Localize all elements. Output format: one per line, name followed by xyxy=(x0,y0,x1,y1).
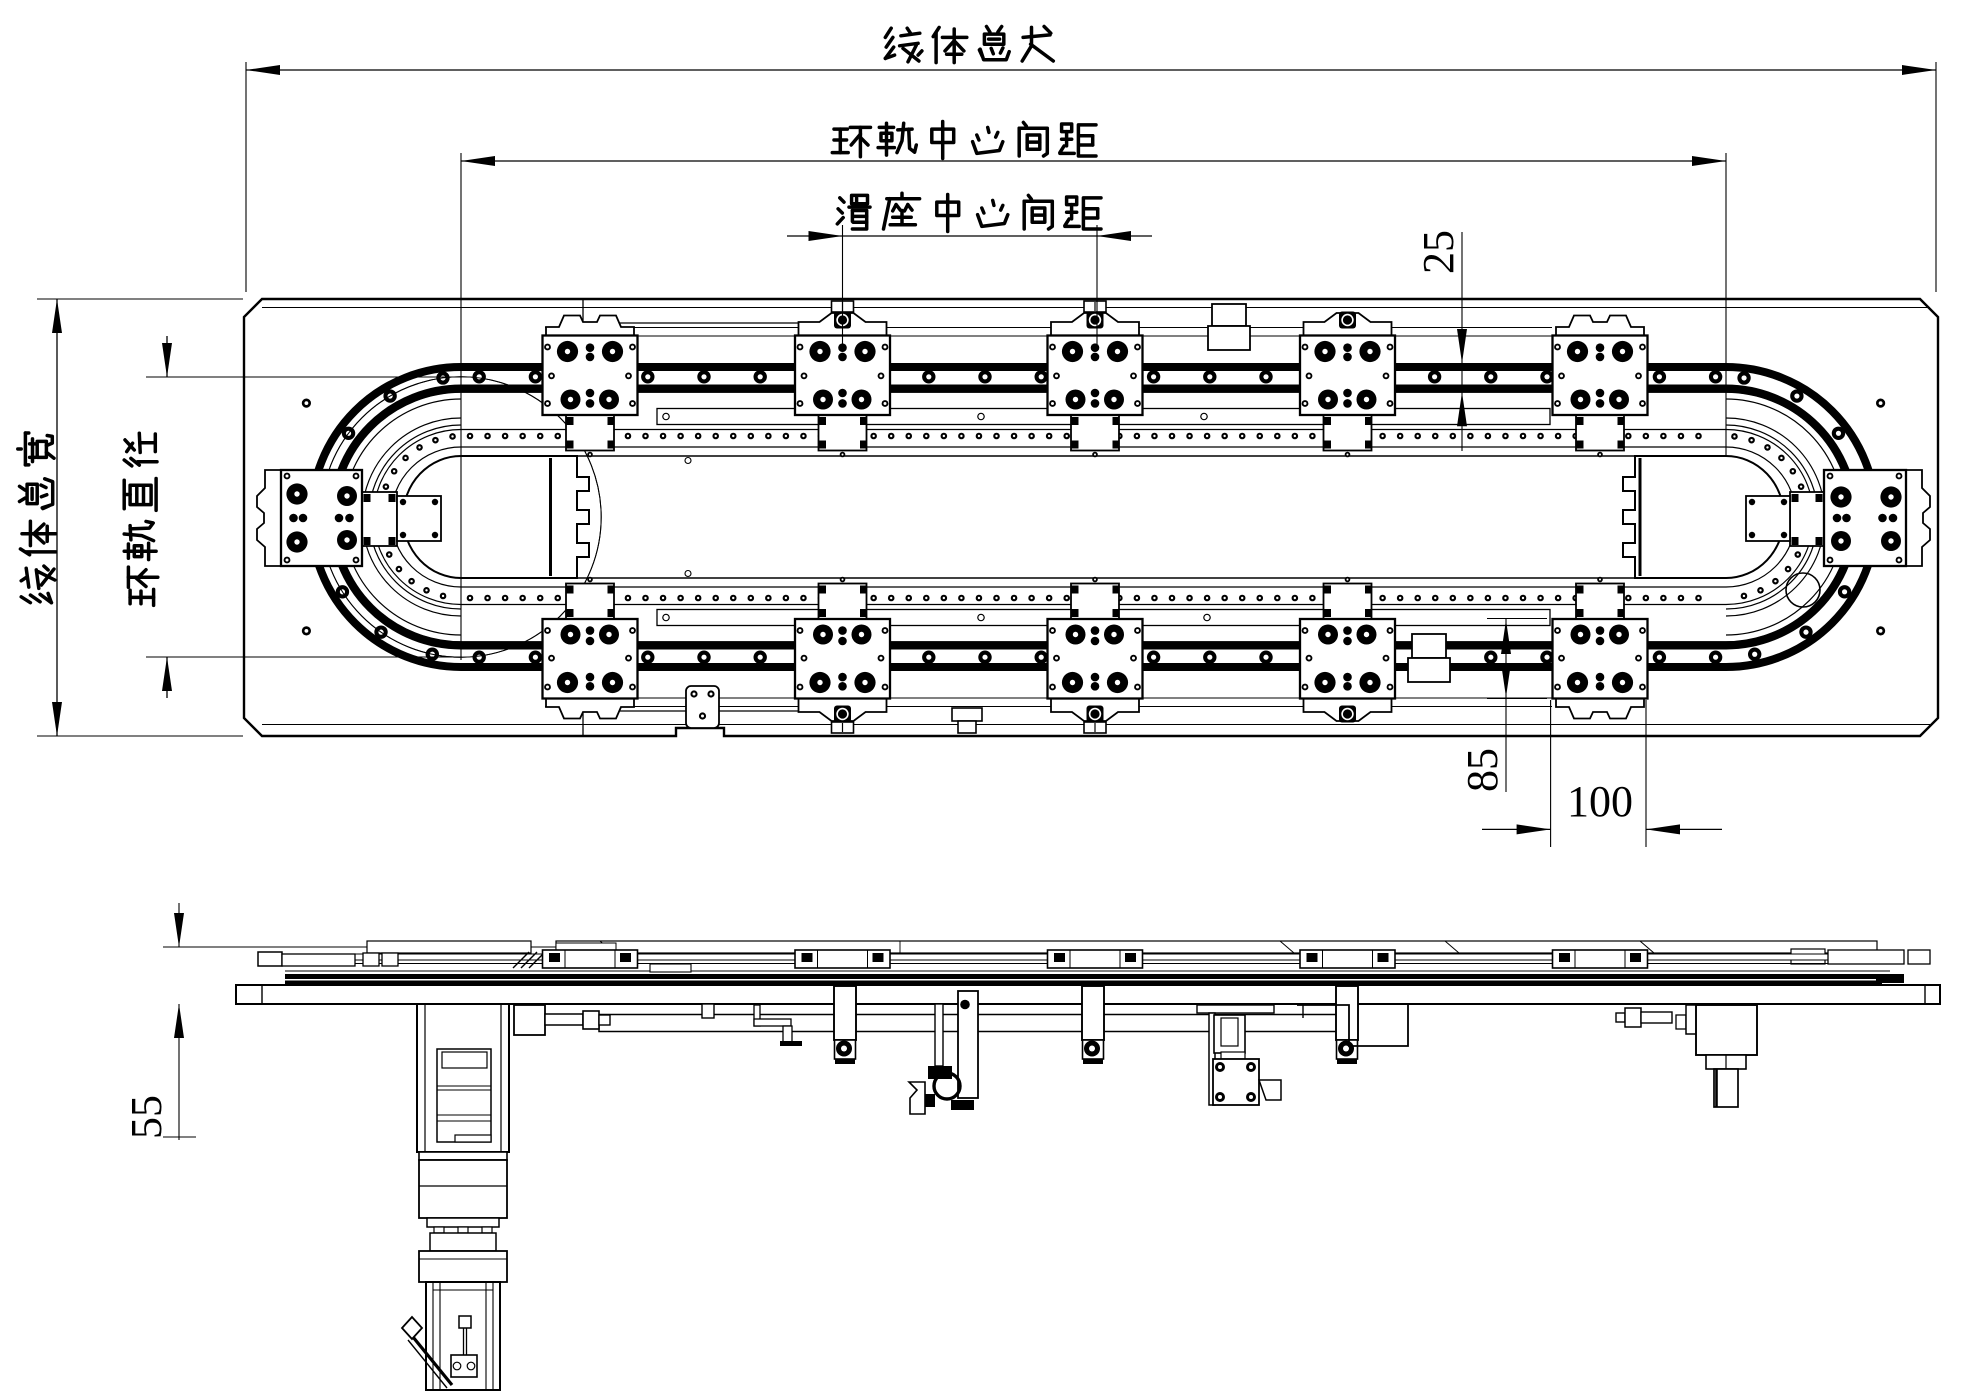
svg-text:100: 100 xyxy=(1567,777,1633,826)
svg-text:55: 55 xyxy=(122,1095,171,1139)
svg-text:85: 85 xyxy=(1458,748,1507,792)
svg-text:25: 25 xyxy=(1414,230,1463,274)
